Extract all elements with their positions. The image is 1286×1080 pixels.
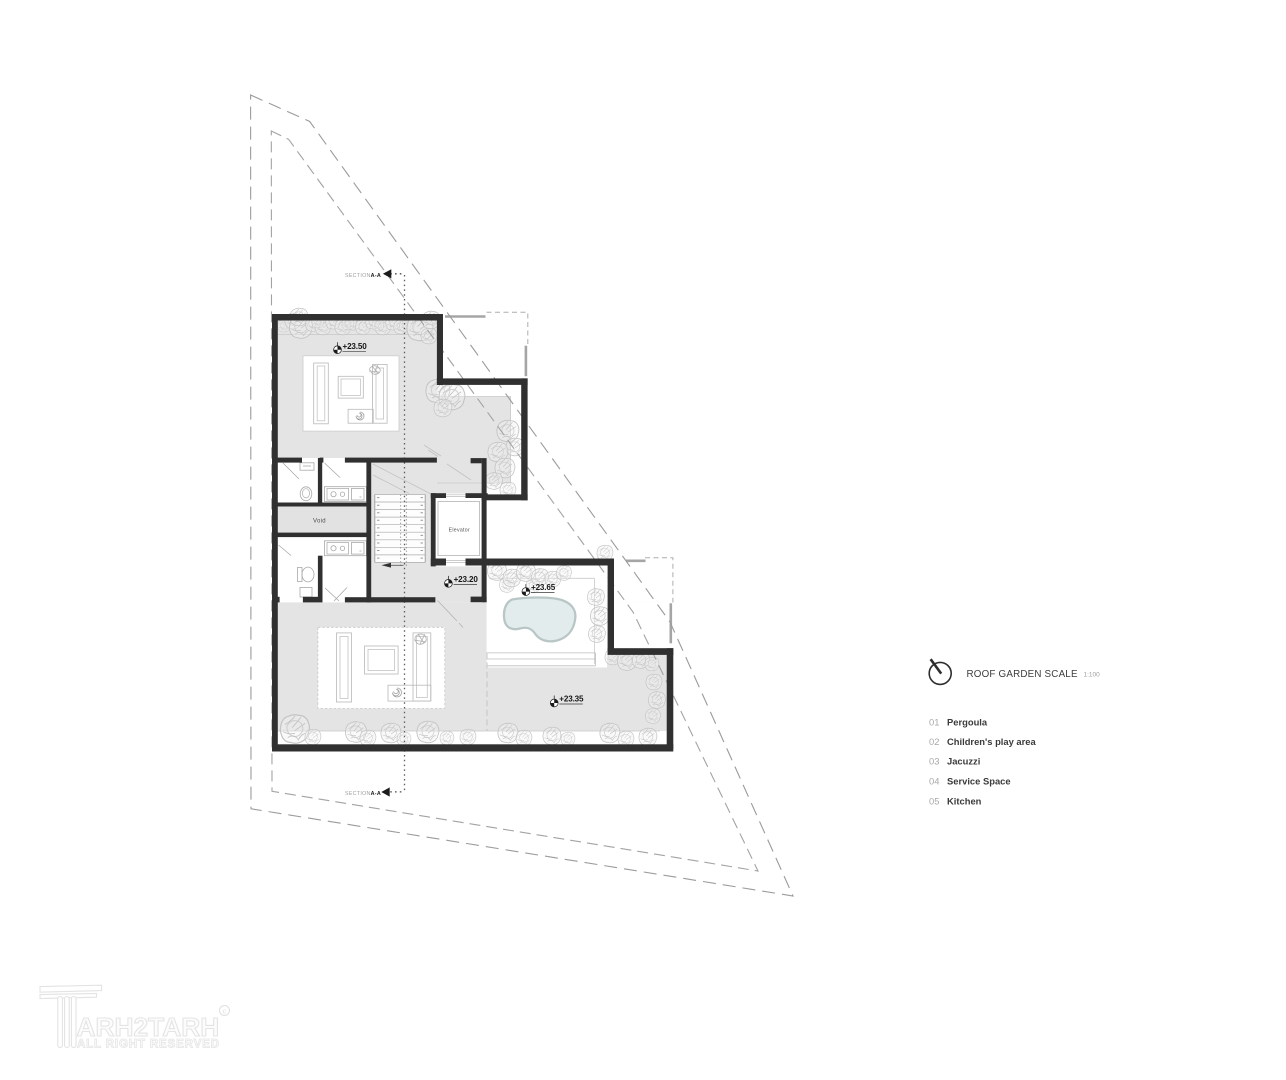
- svg-text:Pergoula: Pergoula: [947, 716, 988, 727]
- svg-text:04: 04: [929, 775, 939, 786]
- svg-text:+23.35: +23.35: [559, 695, 584, 704]
- svg-text:SECTION: SECTION: [345, 273, 371, 279]
- svg-text:01: 01: [929, 716, 939, 727]
- svg-text:Jacuzzi: Jacuzzi: [947, 756, 980, 767]
- svg-text:1:100: 1:100: [1084, 671, 1101, 678]
- svg-text:ALL RIGHT RESERVED: ALL RIGHT RESERVED: [77, 1038, 220, 1051]
- svg-text:Void: Void: [313, 518, 326, 524]
- svg-text:A-A: A-A: [371, 791, 381, 797]
- svg-text:Service Space: Service Space: [947, 775, 1011, 786]
- svg-text:+23.20: +23.20: [454, 575, 479, 584]
- svg-text:Kitchen: Kitchen: [947, 795, 982, 806]
- svg-text:Children's play area: Children's play area: [947, 736, 1037, 747]
- svg-text:+23.65: +23.65: [531, 583, 556, 592]
- svg-text:05: 05: [929, 795, 939, 806]
- svg-text:03: 03: [929, 756, 939, 767]
- svg-text:Elevator: Elevator: [449, 527, 470, 533]
- svg-text:02: 02: [929, 736, 939, 747]
- svg-text:c: c: [223, 1006, 227, 1015]
- svg-text:+23.50: +23.50: [343, 342, 368, 351]
- svg-text:A-A: A-A: [371, 273, 381, 279]
- svg-text:ROOF GARDEN SCALE: ROOF GARDEN SCALE: [967, 669, 1078, 680]
- svg-text:SECTION: SECTION: [345, 791, 371, 797]
